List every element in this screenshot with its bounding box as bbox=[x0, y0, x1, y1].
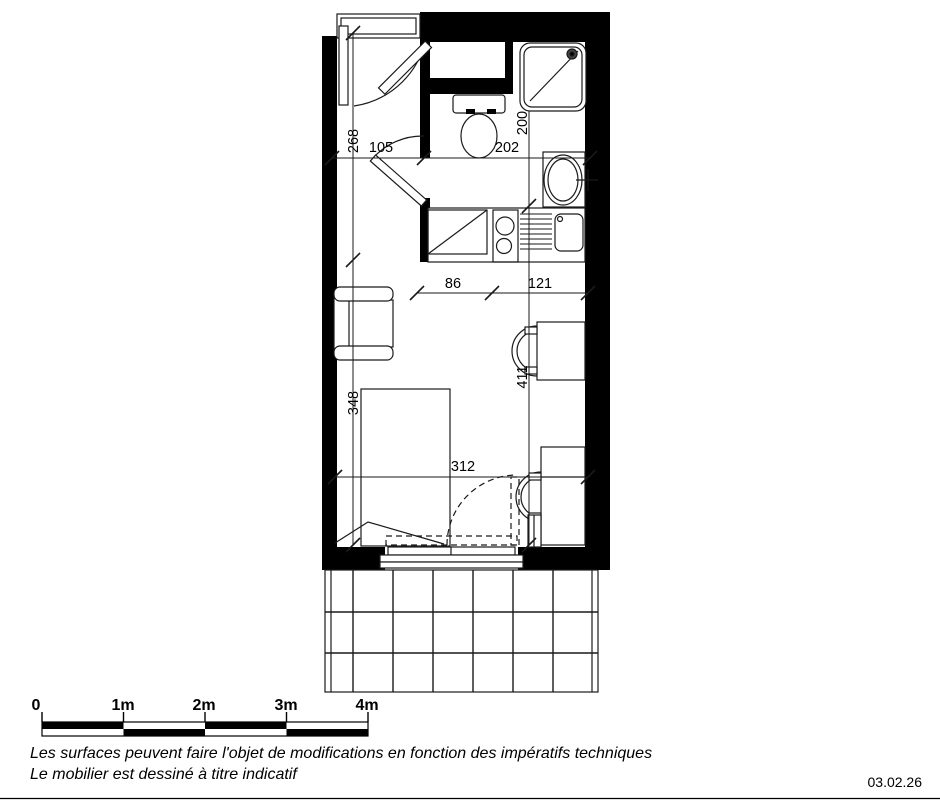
shower-drain-center bbox=[570, 52, 574, 56]
toilet-button-left bbox=[466, 109, 475, 114]
wall-bottom-left bbox=[322, 547, 385, 570]
dim-label-105: 105 bbox=[369, 140, 393, 156]
living-room bbox=[334, 287, 585, 546]
scale-bar-segments bbox=[42, 722, 368, 736]
date-label: 03.02.26 bbox=[868, 774, 923, 790]
kitchen-wall-left bbox=[420, 210, 428, 256]
toilet-button-right bbox=[487, 109, 496, 114]
wall-right bbox=[585, 12, 610, 570]
chair-2-back-inner bbox=[521, 477, 541, 517]
scale-label-4m: 4m bbox=[355, 697, 378, 714]
desk-1 bbox=[537, 322, 585, 380]
kitchenette bbox=[428, 208, 585, 262]
dim-label-411: 411 bbox=[515, 365, 531, 388]
wall-top bbox=[420, 12, 610, 42]
floor-plan-page: 268 105 202 200 86 121 348 411 312 0 1m … bbox=[0, 0, 940, 800]
scale-label-0: 0 bbox=[32, 697, 41, 714]
toilet-bowl bbox=[461, 114, 497, 158]
chair-1-back-inner bbox=[517, 331, 537, 371]
bathroom-wall-upper bbox=[420, 108, 430, 158]
armchair-armrest-top bbox=[334, 287, 393, 301]
balcony bbox=[325, 570, 598, 692]
balcony-door-swing-arc-dashed bbox=[447, 475, 517, 545]
floor-plan: 268 105 202 200 86 121 348 411 312 0 1m … bbox=[0, 0, 940, 800]
dim-label-202: 202 bbox=[495, 140, 519, 156]
desk-2 bbox=[541, 447, 585, 545]
bed bbox=[361, 389, 450, 546]
entry bbox=[337, 14, 432, 106]
chair-1-arm-top bbox=[525, 327, 537, 334]
balcony-outline bbox=[325, 570, 598, 692]
duct-wall-bottom bbox=[428, 78, 513, 94]
armchair-armrest-bottom bbox=[334, 346, 393, 360]
balcony-tile-grid bbox=[325, 570, 598, 692]
scale-bar: 0 1m 2m 3m 4m bbox=[32, 697, 379, 736]
armchair-seat bbox=[348, 300, 393, 347]
dim-label-86: 86 bbox=[445, 276, 461, 292]
note-line-1: Les surfaces peuvent faire l'objet de mo… bbox=[30, 745, 652, 762]
note-line-2: Le mobilier est dessiné à titre indicati… bbox=[30, 766, 298, 783]
dim-label-268: 268 bbox=[346, 129, 362, 153]
wardrobe bbox=[339, 26, 348, 105]
window-glazing-2 bbox=[380, 555, 523, 562]
window-sill bbox=[380, 562, 523, 568]
scale-bar-ticks bbox=[42, 712, 368, 722]
dim-label-312: 312 bbox=[451, 459, 475, 475]
duct-wall-right bbox=[505, 42, 513, 82]
scale-label-3m: 3m bbox=[274, 697, 297, 714]
dim-label-121: 121 bbox=[528, 276, 552, 292]
scale-label-2m: 2m bbox=[192, 697, 215, 714]
dim-label-200: 200 bbox=[515, 111, 531, 135]
toilet-tank bbox=[453, 95, 505, 113]
dim-label-348: 348 bbox=[346, 391, 362, 415]
scale-label-1m: 1m bbox=[111, 697, 134, 714]
wall-bottom-right bbox=[518, 547, 610, 570]
armchair-back bbox=[334, 295, 349, 353]
